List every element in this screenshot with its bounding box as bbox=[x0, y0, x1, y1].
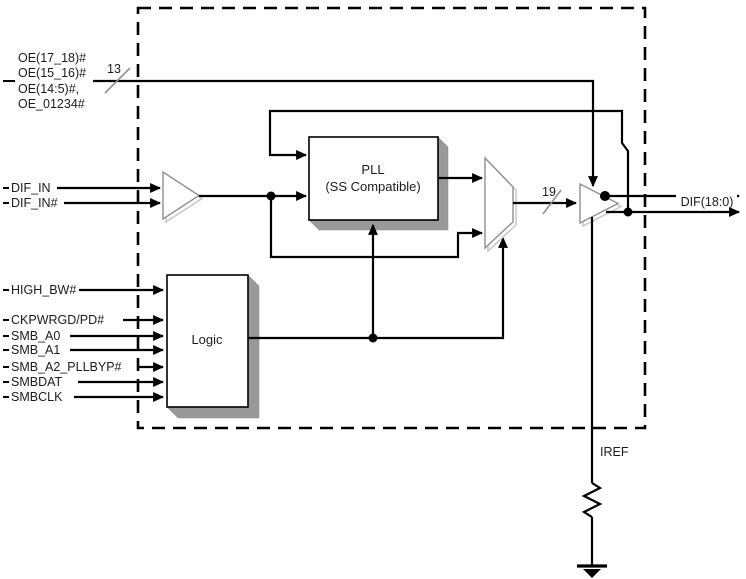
junction-dot-output-true bbox=[600, 191, 610, 201]
mux-body bbox=[485, 158, 513, 248]
dif-in-n-label: DIF_IN# bbox=[11, 196, 58, 210]
output-buffer bbox=[580, 184, 621, 226]
mux bbox=[485, 158, 516, 251]
pll-title: PLL bbox=[361, 162, 384, 177]
ground-symbol bbox=[577, 566, 607, 578]
high-bw-label: HIGH_BW# bbox=[11, 283, 76, 297]
junction-dot-output-feedback bbox=[624, 208, 633, 217]
smbdat-label: SMBDAT bbox=[11, 375, 63, 389]
bus-width-13-label: 13 bbox=[107, 62, 121, 76]
smb-a0-label: SMB_A0 bbox=[11, 329, 60, 343]
oe-label-3: OE(14:5)#, bbox=[18, 82, 79, 96]
dif-in-label: DIF_IN bbox=[11, 181, 51, 195]
ckpwrgd-pd-label: CKPWRGD/PD# bbox=[11, 313, 104, 327]
iref-branch: IREF bbox=[577, 217, 629, 578]
ground-wedge bbox=[583, 569, 601, 578]
oe-label-4: OE_01234# bbox=[18, 97, 85, 111]
iref-resistor bbox=[584, 483, 600, 517]
logic-title: Logic bbox=[191, 332, 223, 347]
diagram-canvas: OE(17_18)# OE(15_16)# OE(14:5)#, OE_0123… bbox=[0, 0, 746, 579]
mux-output-bus: 19 bbox=[513, 185, 576, 214]
logic-block: Logic bbox=[167, 275, 259, 418]
pll-subtitle: (SS Compatible) bbox=[325, 179, 420, 194]
dif-output: DIF(18:0) bbox=[600, 190, 739, 217]
dif-output-label: DIF(18:0) bbox=[681, 195, 734, 209]
smb-a2-pllbyp-label: SMB_A2_PLLBYP# bbox=[11, 360, 122, 374]
oe-label-2: OE(15_16)# bbox=[18, 66, 86, 80]
block-diagram: OE(17_18)# OE(15_16)# OE(14:5)#, OE_0123… bbox=[0, 0, 746, 579]
pll-block: PLL (SS Compatible) bbox=[309, 137, 448, 230]
oe-label-1: OE(17_18)# bbox=[18, 51, 86, 65]
oe-pin-group: OE(17_18)# OE(15_16)# OE(14:5)#, OE_0123… bbox=[3, 51, 593, 186]
iref-label: IREF bbox=[600, 445, 629, 459]
smbclk-label: SMBCLK bbox=[11, 390, 63, 404]
bus-width-19-label: 19 bbox=[542, 185, 556, 199]
input-buffer bbox=[163, 172, 202, 222]
logic-to-mux-select-wire bbox=[248, 238, 503, 338]
dif-input-pins: DIF_IN DIF_IN# bbox=[3, 181, 160, 210]
junction-dot-logic-out bbox=[369, 334, 378, 343]
smb-a1-label: SMB_A1 bbox=[11, 343, 60, 357]
